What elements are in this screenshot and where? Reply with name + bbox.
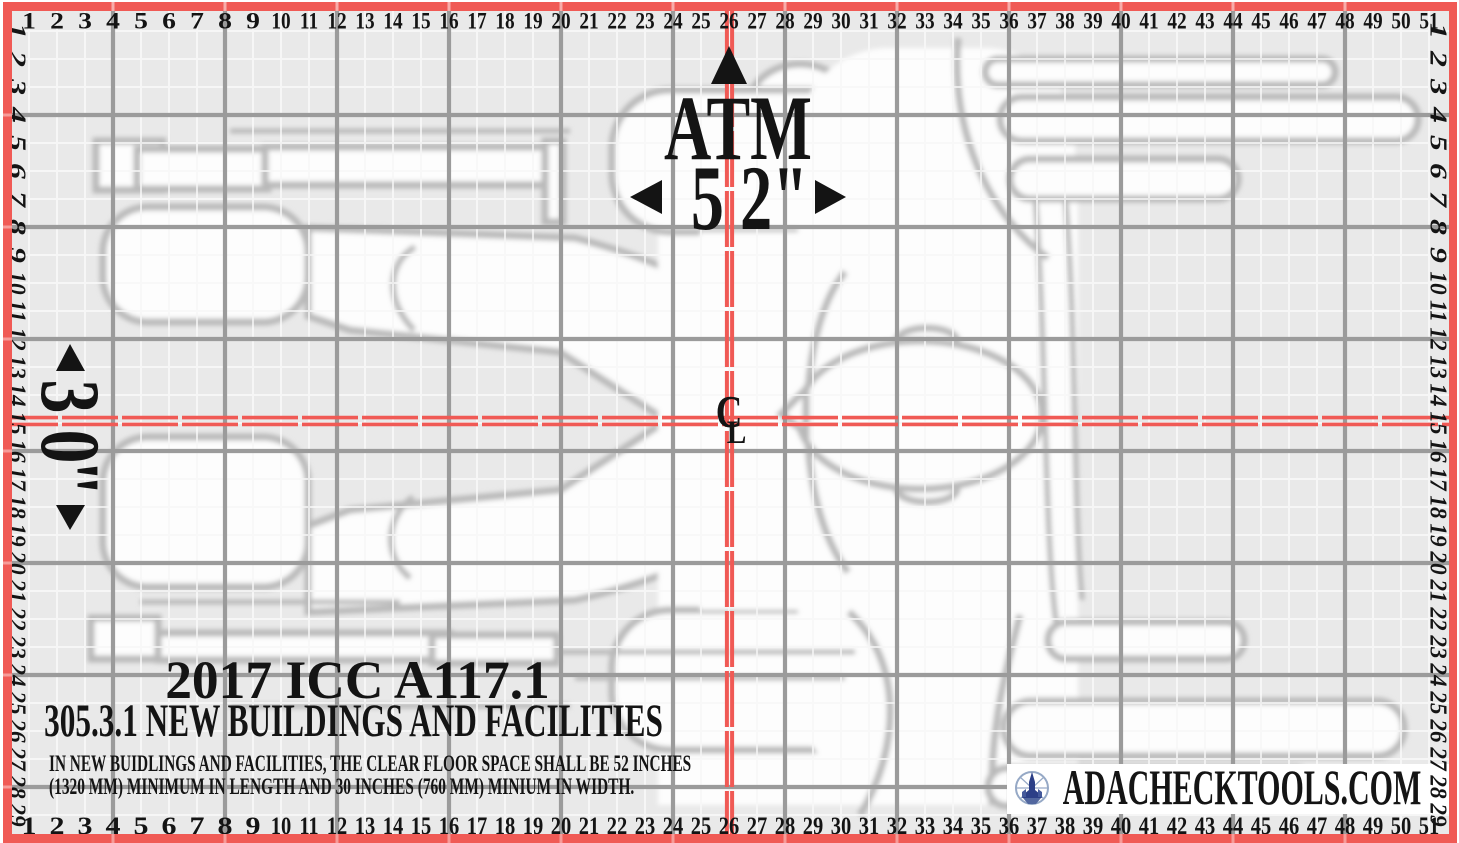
- svg-text:17: 17: [467, 8, 487, 34]
- svg-text:49: 49: [1363, 8, 1382, 34]
- svg-text:15: 15: [411, 8, 430, 34]
- svg-text:23: 23: [1424, 634, 1451, 658]
- svg-text:28: 28: [775, 8, 794, 34]
- svg-text:45: 45: [1251, 8, 1270, 34]
- svg-text:39: 39: [1083, 8, 1102, 34]
- svg-text:19: 19: [523, 8, 542, 34]
- svg-text:17: 17: [1424, 467, 1451, 491]
- svg-text:305.3.1 NEW BUILDINGS AND FACI: 305.3.1 NEW BUILDINGS AND FACILITIES: [44, 694, 663, 747]
- svg-text:42: 42: [1167, 8, 1186, 34]
- svg-text:21: 21: [1424, 578, 1451, 602]
- svg-text:14: 14: [1424, 383, 1451, 406]
- svg-text:5: 5: [1424, 135, 1451, 151]
- svg-text:35: 35: [971, 8, 990, 34]
- svg-text:6: 6: [162, 9, 176, 34]
- svg-text:16: 16: [439, 8, 458, 34]
- svg-text:2: 2: [1424, 50, 1451, 67]
- svg-text:27: 27: [747, 8, 767, 34]
- svg-text:8: 8: [1424, 219, 1451, 235]
- svg-text:28: 28: [1424, 774, 1451, 798]
- svg-text:47: 47: [1307, 8, 1327, 34]
- svg-text:7: 7: [1424, 191, 1451, 209]
- svg-text:": ": [23, 459, 118, 497]
- svg-text:32: 32: [887, 8, 906, 34]
- svg-text:26: 26: [1424, 718, 1451, 742]
- svg-text:IN NEW BUIDLINGS AND FACILITIE: IN NEW BUIDLINGS AND FACILITIES, THE CLE…: [49, 752, 691, 777]
- svg-text:2": 2": [740, 148, 808, 250]
- svg-text:11: 11: [1424, 300, 1451, 322]
- svg-text:44: 44: [1223, 8, 1243, 34]
- svg-text:46: 46: [1279, 8, 1298, 34]
- svg-text:22: 22: [607, 8, 626, 34]
- svg-text:9: 9: [246, 9, 260, 34]
- svg-text:23: 23: [635, 8, 654, 34]
- svg-text:1: 1: [1424, 23, 1451, 39]
- svg-text:31: 31: [859, 8, 878, 34]
- svg-text:11: 11: [300, 8, 318, 34]
- svg-text:36: 36: [999, 8, 1018, 34]
- svg-text:29: 29: [803, 8, 822, 34]
- svg-text:18: 18: [1424, 495, 1451, 518]
- svg-text:21: 21: [579, 8, 598, 34]
- svg-text:20: 20: [1424, 550, 1451, 574]
- svg-text:37: 37: [1027, 8, 1047, 34]
- svg-text:4: 4: [1424, 106, 1451, 123]
- svg-text:41: 41: [1139, 8, 1158, 34]
- svg-text:12: 12: [1424, 327, 1451, 350]
- svg-text:26: 26: [719, 8, 738, 34]
- svg-text:27: 27: [1424, 746, 1451, 771]
- svg-text:(1320 MM) MINIMUM IN LENGTH AN: (1320 MM) MINIMUM IN LENGTH AND 30 INCHE…: [49, 775, 634, 800]
- svg-text:10: 10: [1424, 271, 1451, 294]
- svg-text:4: 4: [106, 9, 120, 34]
- svg-text:25: 25: [691, 8, 710, 34]
- svg-text:24: 24: [663, 8, 683, 34]
- svg-text:25: 25: [1424, 690, 1451, 714]
- svg-text:ADACHECKTOOLS.COM: ADACHECKTOOLS.COM: [1063, 759, 1422, 815]
- svg-text:34: 34: [943, 8, 963, 34]
- svg-text:10: 10: [271, 8, 290, 34]
- svg-text:20: 20: [551, 8, 570, 34]
- svg-text:5: 5: [134, 9, 148, 34]
- svg-text:43: 43: [1195, 8, 1214, 34]
- svg-text:16: 16: [1424, 439, 1451, 462]
- svg-text:13: 13: [355, 8, 374, 34]
- svg-text:3: 3: [1424, 78, 1451, 95]
- svg-text:14: 14: [383, 8, 403, 34]
- svg-text:18: 18: [495, 8, 514, 34]
- svg-text:24: 24: [1424, 662, 1451, 686]
- svg-text:9: 9: [1424, 247, 1451, 263]
- svg-text:12: 12: [327, 8, 346, 34]
- svg-text:13: 13: [1424, 355, 1451, 378]
- svg-text:15: 15: [1424, 411, 1451, 434]
- svg-text:3: 3: [23, 380, 118, 414]
- svg-text:8: 8: [218, 9, 232, 34]
- svg-text:3: 3: [78, 9, 92, 34]
- svg-text:6: 6: [1424, 163, 1451, 180]
- svg-text:7: 7: [190, 9, 204, 34]
- svg-text:38: 38: [1055, 8, 1074, 34]
- svg-text:30: 30: [831, 8, 850, 34]
- svg-text:48: 48: [1335, 8, 1354, 34]
- svg-text:5: 5: [691, 149, 724, 250]
- svg-text:33: 33: [915, 8, 934, 34]
- svg-text:19: 19: [1424, 523, 1451, 546]
- svg-text:29: 29: [1424, 802, 1451, 826]
- svg-text:2: 2: [50, 9, 64, 34]
- svg-text:L: L: [727, 413, 747, 450]
- svg-text:22: 22: [1424, 606, 1451, 630]
- svg-text:50: 50: [1391, 8, 1410, 34]
- svg-text:40: 40: [1111, 8, 1130, 34]
